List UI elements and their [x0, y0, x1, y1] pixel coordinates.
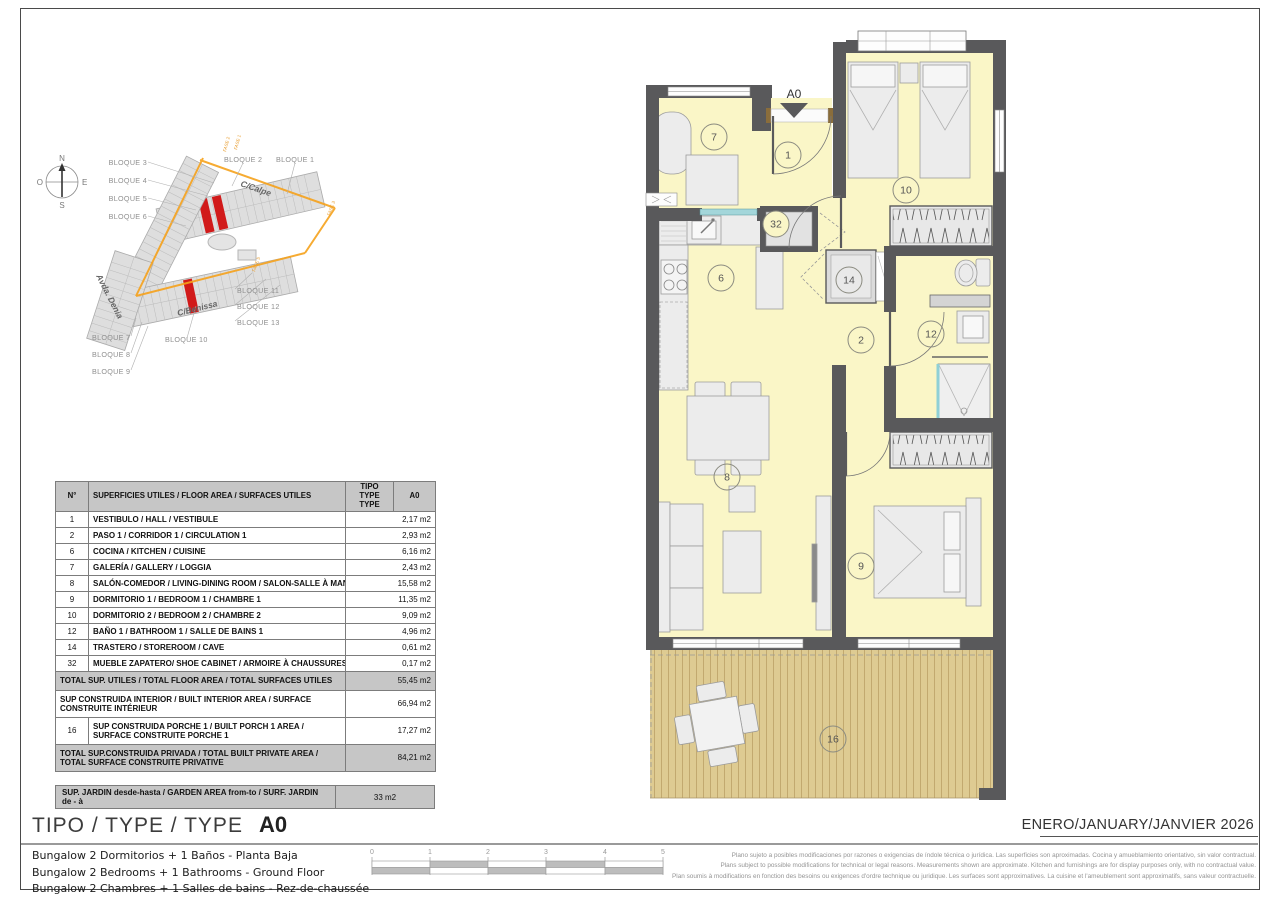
double-bed — [874, 498, 981, 606]
room-number: 7 — [56, 559, 89, 575]
coffee-table — [723, 531, 761, 593]
plan-sheet: BLOQUE 3 BLOQUE 4 BLOQUE 5 BLOQUE 6 BLOQ… — [0, 0, 1280, 905]
table-row: 32MUEBLE ZAPATERO/ SHOE CABINET / ARMOIR… — [56, 655, 436, 671]
total-floor-area-row: TOTAL SUP. UTILES / TOTAL FLOOR AREA / T… — [56, 671, 436, 690]
block-label: BLOQUE 7 — [92, 333, 130, 342]
room-name: COCINA / KITCHEN / CUISINE — [89, 543, 346, 559]
compass-s: S — [59, 201, 64, 210]
room-area: 15,58 m2 — [346, 575, 436, 591]
table-row: 12BAÑO 1 / BATHROOM 1 / SALLE DE BAINS 1… — [56, 623, 436, 639]
col-tipo: TIPO TYPE TYPE — [346, 482, 394, 512]
room-number: 2 — [56, 527, 89, 543]
description-en: Bungalow 2 Bedrooms + 1 Bathrooms - Grou… — [32, 866, 369, 879]
garden-area-row: SUP. JARDIN desde-hasta / GARDEN AREA fr… — [55, 785, 435, 809]
room-label-32: 32 — [763, 211, 789, 237]
room-name: DORMITORIO 1 / BEDROOM 1 / CHAMBRE 1 — [89, 591, 346, 607]
room-number: 2 — [858, 335, 864, 347]
garden-label: SUP. JARDIN desde-hasta / GARDEN AREA fr… — [56, 786, 336, 809]
type-code: A0 — [259, 812, 287, 837]
room-area: 11,35 m2 — [346, 591, 436, 607]
date-underline — [1040, 836, 1258, 837]
room-name: VESTIBULO / HALL / VESTIBULE — [89, 511, 346, 527]
kitchen-peninsula — [756, 247, 783, 309]
room-number: 12 — [925, 329, 937, 341]
scale-tick: 3 — [544, 849, 548, 856]
block-label: BLOQUE 2 — [224, 155, 262, 164]
room-area: 2,17 m2 — [346, 511, 436, 527]
col-label: SUPERFICIES UTILES / FLOOR AREA / SURFAC… — [89, 482, 346, 512]
total-private-row: TOTAL SUP.CONSTRUIDA PRIVADA / TOTAL BUI… — [56, 744, 436, 771]
description-fr: Bungalow 2 Chambres + 1 Salles de bains … — [32, 882, 369, 895]
dining-table — [687, 396, 769, 460]
block-label: BLOQUE 3 — [109, 158, 147, 167]
room-number: 14 — [56, 639, 89, 655]
headboard — [966, 498, 981, 606]
total-value: 55,45 m2 — [346, 671, 436, 690]
table-row: 7GALERÍA / GALLERY / LOGGIA2,43 m2 — [56, 559, 436, 575]
block-label: BLOQUE 8 — [92, 350, 130, 359]
porch-label: SUP CONSTRUIDA PORCHE 1 / BUILT PORCH 1 … — [89, 717, 346, 744]
table-row: 6COCINA / KITCHEN / CUISINE6,16 m2 — [56, 543, 436, 559]
room-number: 9 — [858, 561, 864, 573]
floor-plan: A0 7 1 10 32 6 14 2 12 8 9 16 — [630, 25, 1090, 815]
porch-number: 16 — [56, 717, 89, 744]
col-a0: A0 — [394, 482, 436, 512]
block-label: BLOQUE 4 — [109, 176, 147, 185]
compass-o: O — [37, 178, 43, 187]
block-label: BLOQUE 9 — [92, 367, 130, 376]
col-num: N° — [56, 482, 89, 512]
room-number: 7 — [711, 132, 717, 144]
sofa — [655, 502, 703, 632]
room-number: 8 — [56, 575, 89, 591]
amenity-building — [238, 250, 256, 260]
compass-e: E — [82, 178, 87, 187]
room-number: 12 — [56, 623, 89, 639]
room-number: 32 — [56, 655, 89, 671]
glass-door — [700, 209, 757, 215]
scale-tick: 1 — [428, 849, 432, 856]
table-header-row: N° SUPERFICIES UTILES / FLOOR AREA / SUR… — [56, 482, 436, 512]
entry-label: A0 — [787, 87, 802, 101]
table-row: 8SALÓN-COMEDOR / LIVING-DINING ROOM / SA… — [56, 575, 436, 591]
block-label: BLOQUE 1 — [276, 155, 314, 164]
sheet-title: TIPO / TYPE / TYPEA0 — [32, 812, 287, 838]
scale-tick: 0 — [370, 849, 374, 856]
block-label: BLOQUE 6 — [109, 212, 147, 221]
room-number: 6 — [56, 543, 89, 559]
total-private-label: TOTAL SUP.CONSTRUIDA PRIVADA / TOTAL BUI… — [56, 744, 346, 771]
washing-machine — [686, 155, 738, 205]
disclaimer-en: Plans subject to possible modifications … — [656, 861, 1256, 871]
vent-window — [646, 193, 677, 206]
site-plan: BLOQUE 3 BLOQUE 4 BLOQUE 5 BLOQUE 6 BLOQ… — [25, 125, 360, 390]
room-area: 0,61 m2 — [346, 639, 436, 655]
room-area: 6,16 m2 — [346, 543, 436, 559]
garden-value: 33 m2 — [336, 786, 435, 809]
toilet-tank — [976, 259, 990, 286]
room-number: 10 — [900, 185, 912, 197]
table-row: 14TRASTERO / STOREROOM / CAVE0,61 m2 — [56, 639, 436, 655]
legal-disclaimer: Plano sujeto a posibles modificaciones p… — [656, 851, 1256, 882]
fase-label: FASE 2 — [222, 136, 231, 153]
room-area: 9,09 m2 — [346, 607, 436, 623]
room-number: 14 — [843, 275, 855, 287]
room-name: MUEBLE ZAPATERO/ SHOE CABINET / ARMOIRE … — [89, 655, 346, 671]
table-row: 1VESTIBULO / HALL / VESTIBULE2,17 m2 — [56, 511, 436, 527]
title-label: TIPO / TYPE / TYPE — [32, 814, 243, 837]
room-number: 32 — [770, 219, 782, 231]
room-name: DORMITORIO 2 / BEDROOM 2 / CHAMBRE 2 — [89, 607, 346, 623]
description-es: Bungalow 2 Dormitorios + 1 Baños - Plant… — [32, 849, 369, 862]
built-interior-label: SUP CONSTRUIDA INTERIOR / BUILT INTERIOR… — [56, 690, 346, 717]
block-label: BLOQUE 5 — [109, 194, 147, 203]
compass-needle-icon — [59, 163, 66, 171]
amenity-pool — [208, 234, 236, 250]
room-area: 0,17 m2 — [346, 655, 436, 671]
block-label: BLOQUE 12 — [237, 302, 280, 311]
terrace-table — [689, 696, 745, 752]
fase-label: FASE 1 — [233, 134, 242, 151]
date-label: ENERO/JANUARY/JANVIER 2026 — [1022, 817, 1254, 833]
wardrobe-bedroom1 — [890, 432, 992, 468]
block-label: BLOQUE 11 — [237, 286, 279, 295]
shower-tray — [938, 364, 990, 420]
room-number: 8 — [724, 472, 730, 484]
total-label: TOTAL SUP. UTILES / TOTAL FLOOR AREA / T… — [56, 671, 346, 690]
wardrobe-bedroom2 — [890, 206, 992, 246]
table-row: 2PASO 1 / CORRIDOR 1 / CIRCULATION 12,93… — [56, 527, 436, 543]
room-name: BAÑO 1 / BATHROOM 1 / SALLE DE BAINS 1 — [89, 623, 346, 639]
compass-rose: N E S O — [37, 154, 88, 210]
room-number: 6 — [718, 273, 724, 285]
stove — [661, 260, 687, 294]
tv — [812, 544, 817, 602]
room-area: 2,93 m2 — [346, 527, 436, 543]
room-name: SALÓN-COMEDOR / LIVING-DINING ROOM / SAL… — [89, 575, 346, 591]
room-name: GALERÍA / GALLERY / LOGGIA — [89, 559, 346, 575]
built-interior-value: 66,94 m2 — [346, 690, 436, 717]
table-row: 10DORMITORIO 2 / BEDROOM 2 / CHAMBRE 29,… — [56, 607, 436, 623]
room-number: 1 — [56, 511, 89, 527]
scale-tick: 2 — [486, 849, 490, 856]
block-label: BLOQUE 13 — [237, 318, 280, 327]
room-area: 4,96 m2 — [346, 623, 436, 639]
porch-value: 17,27 m2 — [346, 717, 436, 744]
block-label: BLOQUE 10 — [165, 335, 208, 344]
vanity — [930, 295, 990, 307]
built-interior-row: SUP CONSTRUIDA INTERIOR / BUILT INTERIOR… — [56, 690, 436, 717]
unit-descriptions: Bungalow 2 Dormitorios + 1 Baños - Plant… — [32, 849, 369, 899]
table-row: 9DORMITORIO 1 / BEDROOM 1 / CHAMBRE 111,… — [56, 591, 436, 607]
room-area: 2,43 m2 — [346, 559, 436, 575]
room-number: 9 — [56, 591, 89, 607]
disclaimer-es: Plano sujeto a posibles modificaciones p… — [656, 851, 1256, 861]
room-number: 10 — [56, 607, 89, 623]
disclaimer-fr: Plan soumis à modifications en fonction … — [656, 872, 1256, 882]
porch-row: 16SUP CONSTRUIDA PORCHE 1 / BUILT PORCH … — [56, 717, 436, 744]
room-number: 16 — [827, 734, 839, 746]
room-number: 1 — [785, 150, 791, 162]
scale-tick: 4 — [603, 849, 607, 856]
side-table — [729, 486, 755, 512]
compass-n: N — [59, 154, 65, 163]
room-name: TRASTERO / STOREROOM / CAVE — [89, 639, 346, 655]
tv-unit — [816, 496, 831, 630]
scale-bar: 0 1 2 3 4 5 — [368, 845, 668, 883]
room-name: PASO 1 / CORRIDOR 1 / CIRCULATION 1 — [89, 527, 346, 543]
area-table: N° SUPERFICIES UTILES / FLOOR AREA / SUR… — [55, 481, 435, 772]
nightstand — [900, 63, 918, 83]
total-private-value: 84,21 m2 — [346, 744, 436, 771]
